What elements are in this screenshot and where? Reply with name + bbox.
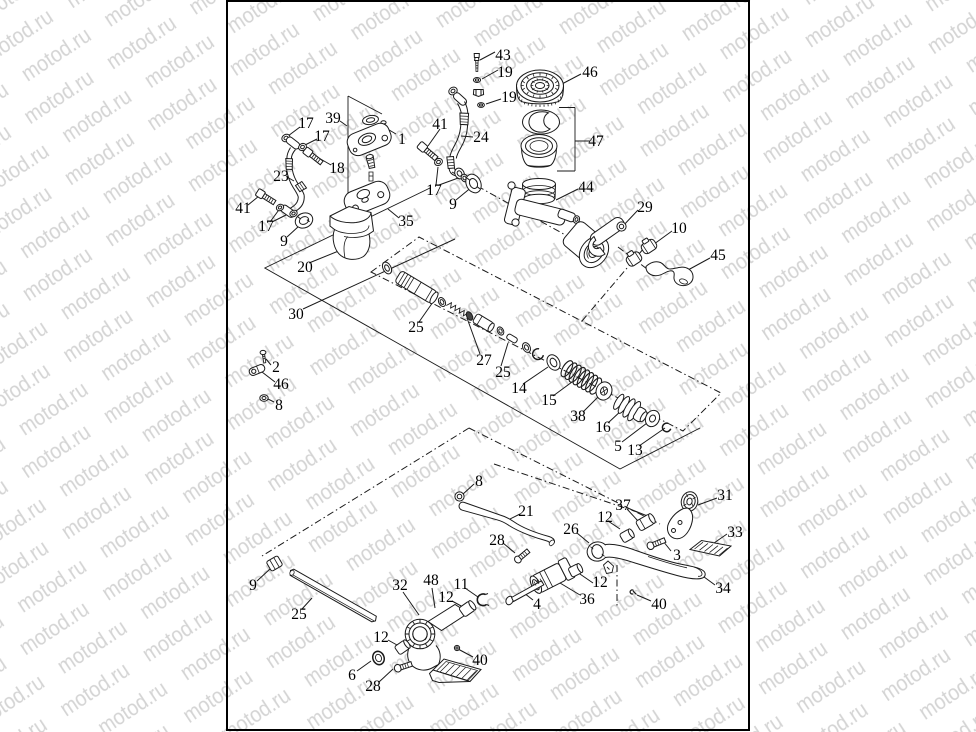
svg-text:12: 12 — [597, 509, 613, 526]
svg-text:21: 21 — [518, 503, 534, 520]
svg-text:14: 14 — [511, 380, 527, 397]
svg-text:40: 40 — [651, 596, 667, 613]
svg-text:15: 15 — [541, 392, 557, 409]
svg-text:6: 6 — [348, 667, 356, 684]
svg-text:36: 36 — [579, 591, 595, 608]
svg-text:9: 9 — [249, 577, 257, 594]
svg-text:27: 27 — [476, 352, 492, 369]
svg-text:10: 10 — [671, 220, 687, 237]
svg-text:9: 9 — [280, 233, 288, 250]
svg-text:41: 41 — [235, 200, 251, 217]
svg-text:20: 20 — [297, 259, 313, 276]
svg-text:23: 23 — [273, 168, 289, 185]
svg-text:9: 9 — [449, 196, 457, 213]
svg-text:5: 5 — [614, 438, 622, 455]
svg-text:40: 40 — [472, 652, 488, 669]
svg-text:17: 17 — [258, 218, 274, 235]
svg-text:44: 44 — [578, 179, 594, 196]
svg-text:17: 17 — [314, 128, 330, 145]
svg-text:25: 25 — [291, 606, 307, 623]
svg-text:24: 24 — [473, 129, 489, 146]
svg-text:26: 26 — [563, 521, 579, 538]
svg-text:19: 19 — [501, 89, 517, 106]
svg-text:38: 38 — [570, 408, 586, 425]
svg-text:19: 19 — [497, 64, 513, 81]
svg-text:46: 46 — [582, 64, 598, 81]
svg-text:12: 12 — [438, 589, 454, 606]
svg-text:17: 17 — [298, 115, 314, 132]
svg-text:8: 8 — [275, 397, 283, 414]
svg-text:17: 17 — [426, 182, 442, 199]
svg-text:28: 28 — [489, 532, 505, 549]
svg-text:12: 12 — [592, 574, 608, 591]
svg-text:3: 3 — [673, 547, 681, 564]
svg-text:34: 34 — [715, 580, 731, 597]
svg-text:48: 48 — [423, 572, 439, 589]
svg-text:31: 31 — [717, 487, 733, 504]
svg-text:18: 18 — [329, 160, 345, 177]
svg-text:37: 37 — [615, 497, 631, 514]
svg-text:46: 46 — [273, 376, 289, 393]
svg-text:12: 12 — [373, 629, 389, 646]
svg-text:32: 32 — [392, 577, 408, 594]
svg-text:43: 43 — [495, 47, 511, 64]
svg-text:39: 39 — [325, 110, 341, 127]
svg-text:2: 2 — [272, 359, 280, 376]
svg-text:28: 28 — [365, 678, 381, 695]
svg-text:25: 25 — [408, 319, 424, 336]
svg-text:35: 35 — [398, 213, 414, 230]
svg-text:29: 29 — [637, 199, 653, 216]
svg-text:41: 41 — [432, 116, 448, 133]
svg-text:47: 47 — [588, 133, 604, 150]
svg-text:45: 45 — [710, 247, 726, 264]
svg-text:1: 1 — [398, 131, 406, 148]
svg-text:8: 8 — [475, 473, 483, 490]
svg-text:33: 33 — [727, 524, 743, 541]
svg-text:30: 30 — [288, 306, 304, 323]
svg-text:16: 16 — [595, 419, 611, 436]
svg-text:25: 25 — [495, 364, 511, 381]
svg-text:13: 13 — [627, 442, 643, 459]
svg-text:4: 4 — [533, 596, 541, 613]
svg-text:11: 11 — [454, 576, 469, 593]
